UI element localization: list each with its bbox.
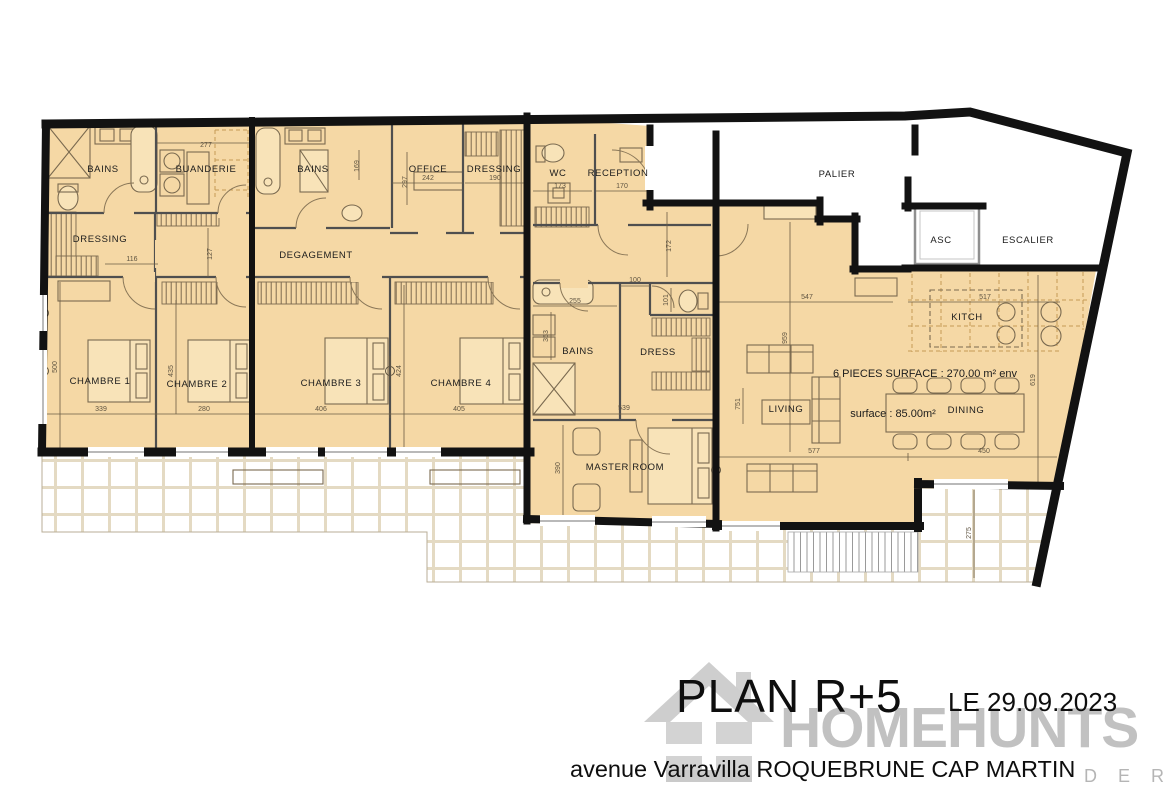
dimension-label: 172 xyxy=(666,240,673,252)
dimension-label: 517 xyxy=(979,294,991,301)
room-label-degagement: DEGAGEMENT xyxy=(279,250,353,261)
dimension-label: 435 xyxy=(168,365,175,377)
terrace-louver-area xyxy=(788,532,918,572)
dimension-label: 500 xyxy=(52,361,59,373)
watermark-tagline: D E R S xyxy=(1084,766,1170,785)
room-label-kitch: KITCH xyxy=(951,312,983,323)
dimension-label: 277 xyxy=(200,142,212,149)
dimension-label: 539 xyxy=(618,405,630,412)
room-label-chambre-2: CHAMBRE 2 xyxy=(167,379,228,390)
room-label-bains-3: BAINS xyxy=(562,346,594,357)
dimension-label: 406 xyxy=(315,406,327,413)
room-label-buanderie: BUANDERIE xyxy=(176,164,237,175)
room-label-master-room: MASTER ROOM xyxy=(586,462,664,473)
dimension-label: 619 xyxy=(1030,374,1037,386)
surface-total: 6 PIECES SURFACE : 270.00 m² env xyxy=(833,368,1018,380)
dimension-label: 255 xyxy=(569,298,581,305)
dimension-label: 424 xyxy=(396,365,403,377)
dimension-label: 173 xyxy=(554,183,566,190)
dimension-label: 339 xyxy=(95,406,107,413)
room-label-living: LIVING xyxy=(769,404,804,415)
room-label-bains-1: BAINS xyxy=(87,164,119,175)
dimension-label: 275 xyxy=(966,527,973,539)
room-label-chambre-1: CHAMBRE 1 xyxy=(70,376,131,387)
dimension-label: 450 xyxy=(978,448,990,455)
surface-note: surface : 85.00m² xyxy=(850,408,936,420)
dimension-label: 577 xyxy=(808,448,820,455)
dimension-label: 116 xyxy=(126,256,137,263)
room-label-asc: ASC xyxy=(930,235,951,246)
dimension-label: 101 xyxy=(663,294,670,306)
dimension-label: 242 xyxy=(422,175,434,182)
room-label-bains-2: BAINS xyxy=(297,164,329,175)
dimension-label: 127 xyxy=(207,248,214,260)
plan-date: LE 29.09.2023 xyxy=(948,687,1117,717)
dimension-label: 169 xyxy=(354,160,361,172)
dimension-label: 547 xyxy=(801,294,813,301)
plan-address: avenue Varravilla ROQUEBRUNE CAP MARTIN xyxy=(570,756,1075,782)
dimension-label: 959 xyxy=(782,332,789,344)
dimension-label: 100 xyxy=(629,277,641,284)
floor-plan-drawing: BAINSBUANDERIEBAINSOFFICEDRESSINGWCRECEP… xyxy=(0,0,1170,785)
room-label-dressing-left: DRESSING xyxy=(73,234,127,245)
room-label-chambre-4: CHAMBRE 4 xyxy=(431,378,492,389)
room-label-dining: DINING xyxy=(948,405,985,416)
plan-title: PLAN R+5 xyxy=(676,670,903,722)
room-label-dressing-top: DRESSING xyxy=(467,164,521,175)
floor-plan-page: BAINSBUANDERIEBAINSOFFICEDRESSINGWCRECEP… xyxy=(0,0,1170,785)
room-label-office: OFFICE xyxy=(409,164,447,175)
room-label-chambre-3: CHAMBRE 3 xyxy=(301,378,362,389)
dimension-label: 390 xyxy=(555,462,562,474)
dimension-label: 405 xyxy=(453,406,465,413)
dimension-label: 280 xyxy=(198,406,210,413)
dimension-label: 297 xyxy=(402,176,409,188)
room-label-escalier: ESCALIER xyxy=(1002,235,1054,246)
dimension-label: 170 xyxy=(616,183,628,190)
room-label-dress: DRESS xyxy=(640,347,676,358)
dimension-label: 353 xyxy=(543,330,550,342)
room-label-wc: WC xyxy=(549,168,566,179)
dimension-label: 190 xyxy=(489,175,501,182)
room-label-palier: PALIER xyxy=(819,169,856,180)
room-label-reception: RECEPTION xyxy=(588,168,649,179)
dimension-label: 751 xyxy=(735,398,742,410)
